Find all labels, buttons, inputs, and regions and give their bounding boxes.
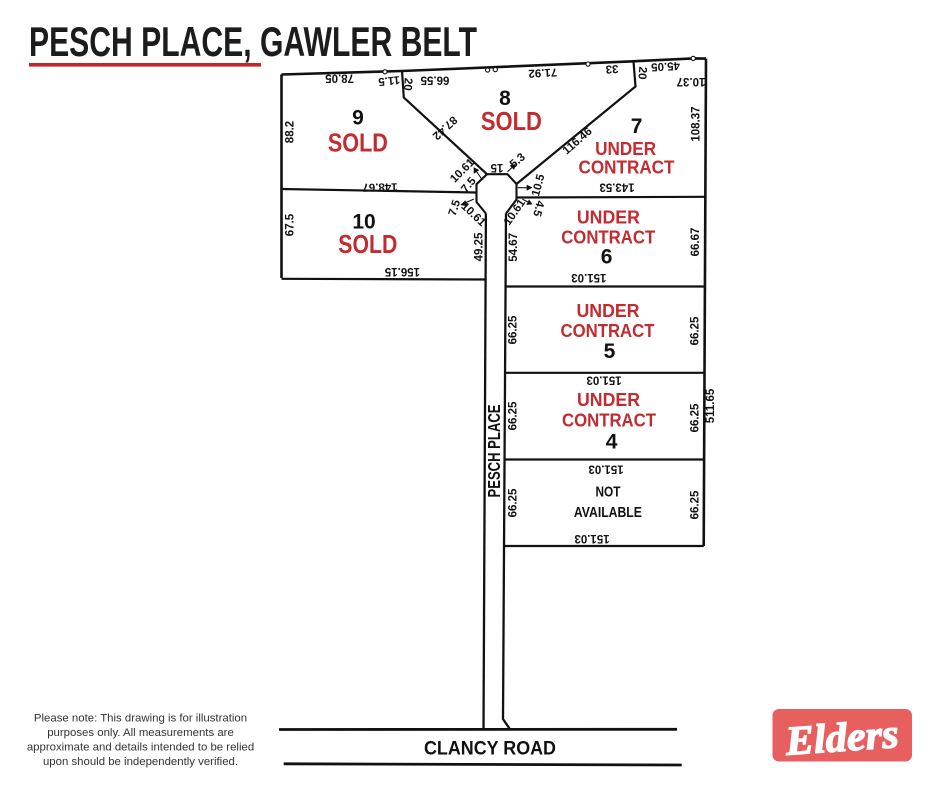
svg-text:148.67: 148.67 (362, 180, 397, 193)
svg-text:66.67: 66.67 (690, 228, 702, 257)
svg-text:66.25: 66.25 (689, 490, 701, 519)
svg-text:approximate and details intend: approximate and details intended to be r… (27, 742, 254, 754)
svg-text:71.92: 71.92 (528, 65, 557, 78)
svg-text:66.25: 66.25 (508, 401, 520, 430)
svg-text:SOLD: SOLD (481, 106, 542, 136)
svg-text:PESCH PLACE: PESCH PLACE (484, 405, 504, 498)
svg-text:66.55: 66.55 (420, 74, 449, 86)
svg-text:upon should be independently v: upon should be independently verified. (43, 756, 238, 768)
svg-text:20: 20 (635, 66, 648, 80)
svg-text:UNDER: UNDER (577, 208, 640, 228)
svg-text:CONTRACT: CONTRACT (561, 227, 655, 247)
svg-text:66.25: 66.25 (690, 316, 702, 345)
svg-text:11.5: 11.5 (377, 73, 400, 87)
svg-text:UNDER: UNDER (595, 139, 656, 159)
svg-text:33: 33 (605, 62, 618, 75)
svg-text:CONTRACT: CONTRACT (579, 157, 675, 177)
svg-text:Elders: Elders (783, 710, 900, 764)
svg-text:7: 7 (631, 115, 643, 138)
svg-text:66.25: 66.25 (690, 403, 702, 432)
svg-text:CLANCY ROAD: CLANCY ROAD (424, 738, 556, 760)
svg-text:78.05: 78.05 (325, 72, 354, 84)
svg-text:67.5: 67.5 (285, 213, 297, 236)
svg-text:45.05: 45.05 (650, 59, 680, 73)
svg-text:9: 9 (352, 107, 364, 130)
svg-text:156.15: 156.15 (384, 265, 420, 277)
svg-text:66.25: 66.25 (508, 488, 520, 517)
svg-text:20: 20 (401, 77, 414, 91)
svg-text:AVAILABLE: AVAILABLE (574, 504, 642, 521)
svg-text:108.37: 108.37 (691, 106, 703, 141)
svg-text:PESCH PLACE, GAWLER BELT: PESCH PLACE, GAWLER BELT (29, 18, 477, 65)
svg-text:151.03: 151.03 (586, 374, 621, 386)
svg-text:6: 6 (601, 246, 613, 269)
svg-text:purposes only. All measurement: purposes only. All measurements are (47, 727, 234, 739)
svg-text:NOT: NOT (596, 484, 621, 501)
svg-text:4: 4 (606, 431, 618, 454)
svg-text:SOLD: SOLD (328, 128, 388, 158)
svg-text:Please note: This drawing is f: Please note: This drawing is for illustr… (34, 713, 247, 725)
svg-text:511.65: 511.65 (705, 388, 717, 423)
svg-text:66.25: 66.25 (508, 315, 520, 344)
svg-text:SOLD: SOLD (338, 229, 397, 259)
svg-text:151.03: 151.03 (571, 271, 606, 283)
svg-text:10.37: 10.37 (677, 75, 706, 87)
svg-text:151.03: 151.03 (574, 532, 609, 544)
svg-text:UNDER: UNDER (577, 301, 640, 321)
svg-text:15: 15 (490, 161, 503, 173)
svg-text:CONTRACT: CONTRACT (561, 321, 655, 341)
svg-text:49.25: 49.25 (474, 232, 486, 261)
svg-text:151.03: 151.03 (588, 463, 623, 475)
svg-text:5: 5 (604, 340, 616, 363)
svg-text:54.67: 54.67 (508, 233, 520, 262)
svg-text:143.53: 143.53 (599, 181, 634, 193)
svg-text:UNDER: UNDER (577, 390, 640, 410)
svg-text:CONTRACT: CONTRACT (562, 410, 656, 430)
svg-text:88.2: 88.2 (285, 121, 297, 143)
